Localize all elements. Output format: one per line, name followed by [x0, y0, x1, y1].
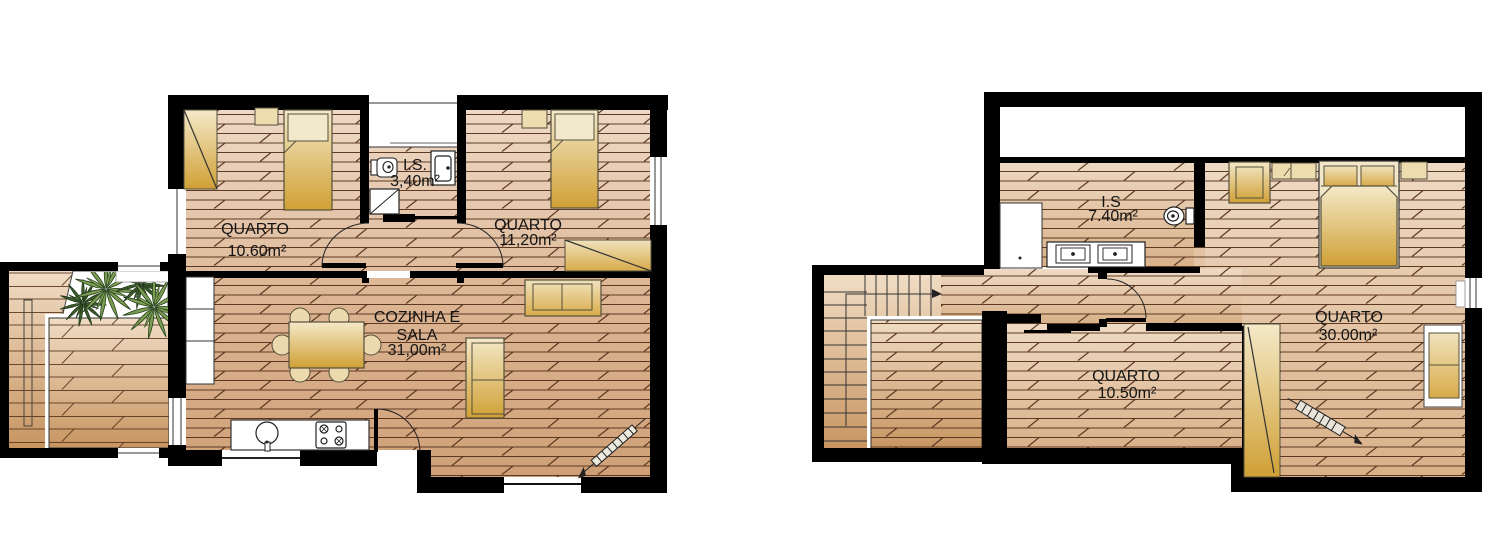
svg-text:7.40m²: 7.40m² [1088, 208, 1138, 225]
svg-text:COZINHA E: COZINHA E [374, 309, 460, 326]
svg-text:30.00m²: 30.00m² [1319, 327, 1378, 344]
svg-text:I.S.: I.S. [403, 157, 427, 174]
svg-text:11,20m²: 11,20m² [499, 232, 557, 249]
svg-text:QUARTO: QUARTO [1092, 368, 1160, 385]
svg-text:10.60m²: 10.60m² [228, 243, 287, 260]
svg-text:QUARTO: QUARTO [221, 221, 289, 238]
svg-text:31,00m²: 31,00m² [388, 342, 447, 359]
svg-text:10.50m²: 10.50m² [1098, 385, 1157, 402]
svg-text:QUARTO: QUARTO [1315, 309, 1383, 326]
svg-text:3,40m²: 3,40m² [390, 173, 440, 190]
